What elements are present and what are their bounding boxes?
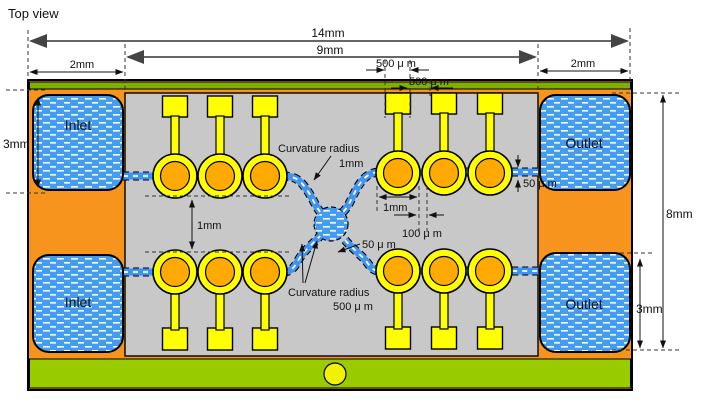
margin-left-label: 2mm — [70, 59, 94, 71]
pad-width-label: 500 μ m — [376, 58, 416, 70]
dimension-margin-right: 2mm — [540, 58, 628, 71]
curvature-bottom-value: 500 μ m — [333, 301, 373, 313]
dimension-chamber-width: 9mm — [128, 43, 535, 57]
channel-width-right-label: 50 μ m — [523, 178, 557, 190]
microfluidic-top-view-diagram: Inlet Inlet Outlet Outlet — [0, 0, 701, 410]
curvature-top-value: 1mm — [339, 158, 363, 170]
outlet-bottom-label: Outlet — [565, 296, 602, 312]
outlet-height-label: 3mm — [636, 302, 663, 316]
inlet-top-reservoir — [33, 95, 123, 190]
total-width-label: 14mm — [311, 26, 344, 40]
alignment-hole — [324, 363, 346, 385]
channel-width-center-label: 50 μ m — [362, 239, 396, 251]
diagram-title: Top view — [8, 6, 59, 21]
dimension-chamber-height: 8mm — [663, 95, 693, 348]
dimension-outlet-height: 3mm — [636, 259, 663, 348]
electrode-gap-label: 100 μ m — [402, 228, 442, 240]
pad-gap-label: 500 μ m — [409, 76, 449, 88]
dimension-margin-left: 2mm — [30, 59, 123, 72]
row-gap-label: 1mm — [197, 220, 221, 232]
glass-top-strip — [30, 82, 631, 89]
dimension-pad-width: 500 μ m — [366, 58, 429, 70]
curvature-bottom-text: Curvature radius — [288, 287, 370, 299]
inlet-top-label: Inlet — [65, 117, 92, 133]
electrode-pitch-label: 1mm — [383, 202, 407, 214]
chamber-width-label: 9mm — [317, 43, 344, 57]
inlet-height-label: 3mm — [3, 137, 30, 151]
margin-right-label: 2mm — [571, 58, 595, 70]
chamber-height-label: 8mm — [666, 207, 693, 221]
dimension-total-width: 14mm — [31, 26, 627, 41]
outlet-top-label: Outlet — [565, 135, 602, 151]
inlet-bottom-label: Inlet — [65, 294, 92, 310]
curvature-top-text: Curvature radius — [278, 143, 360, 155]
